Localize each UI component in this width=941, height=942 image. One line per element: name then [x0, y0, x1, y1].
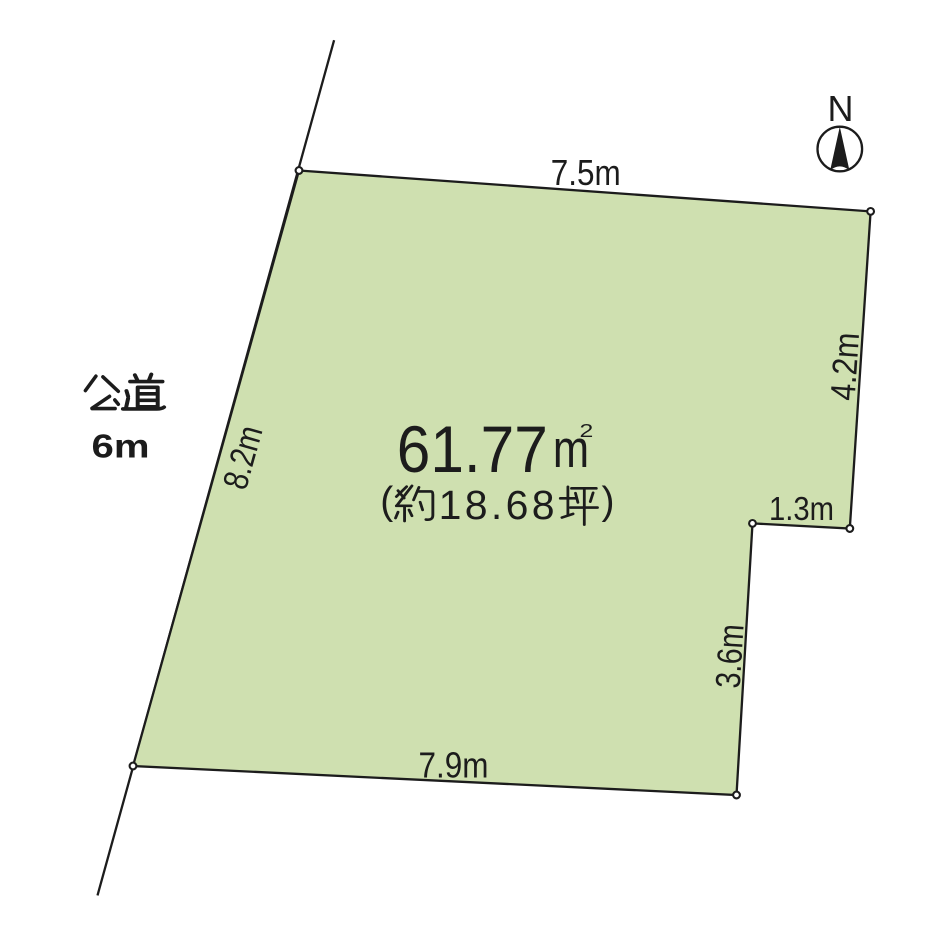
- svg-text:4.2m: 4.2m: [824, 331, 867, 401]
- svg-text:N: N: [828, 88, 854, 129]
- svg-text:6m: 6m: [92, 429, 150, 466]
- svg-text:7.5m: 7.5m: [551, 152, 621, 193]
- svg-text:2: 2: [580, 421, 594, 441]
- svg-text:3.6m: 3.6m: [709, 623, 752, 689]
- svg-text:1.3m: 1.3m: [769, 491, 834, 528]
- svg-text:7.9m: 7.9m: [419, 744, 489, 785]
- svg-text:): ): [602, 480, 615, 523]
- svg-text:61.77: 61.77: [397, 413, 548, 486]
- svg-text:(: (: [380, 480, 393, 523]
- svg-text:18.68: 18.68: [439, 482, 555, 528]
